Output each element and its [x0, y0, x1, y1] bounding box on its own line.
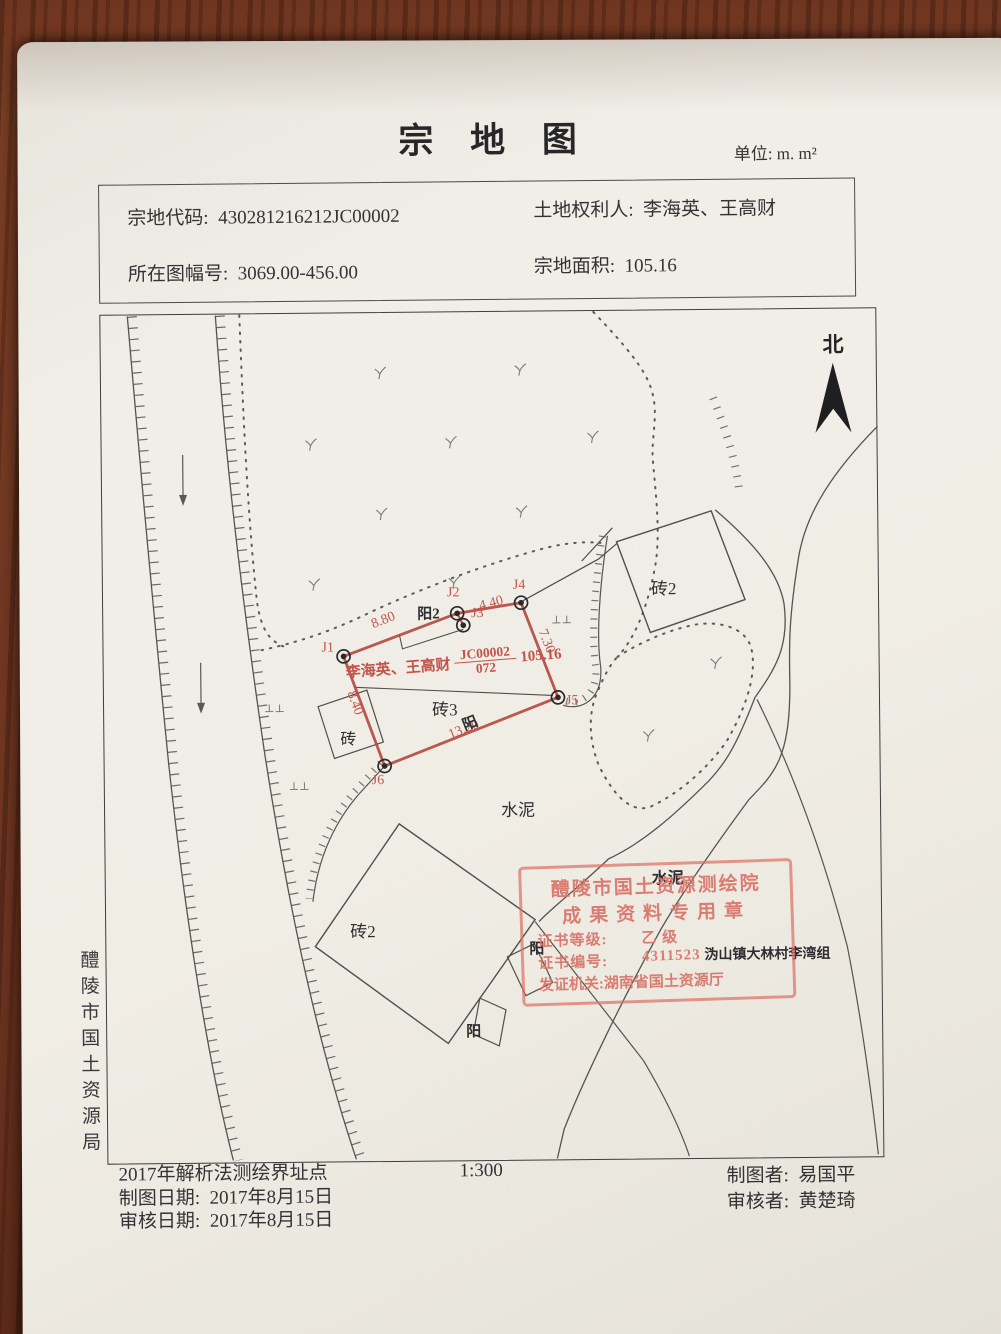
map-sheet-number: 所在图幅号: 3069.00-456.00	[128, 257, 358, 286]
official-stamp: 醴陵市国土资源测绘院 成果资料专用章 证书等级: 乙 级 证书编号: 43115…	[518, 858, 796, 1007]
label-field-symbol-3: ⊥⊥	[289, 780, 310, 793]
drafter: 制图者: 易国平	[726, 1163, 855, 1190]
unit-label: 单位: m. m²	[734, 139, 817, 165]
label-brick2-top: 砖2	[651, 574, 677, 599]
label-brick2-bottom: 砖2	[350, 917, 376, 942]
point-label-j2: J2	[447, 585, 460, 601]
draw-date: 制图日期: 2017年8月15日	[119, 1185, 334, 1211]
agency-vertical-title: 醴陵市国土资源局	[74, 950, 103, 1165]
rights-holder: 土地权利人: 李海英、王高财	[533, 193, 776, 222]
label-brick3: 砖3	[432, 695, 458, 720]
reviewer: 审核者: 黄楚琦	[727, 1189, 856, 1216]
page-title: 宗 地 图	[294, 110, 694, 165]
parcel-code: 宗地代码: 430281216212JC00002	[127, 201, 400, 231]
footer-notes: 2017年解析法测绘界址点 制图日期: 2017年8月15日 审核日期: 201…	[118, 1162, 333, 1235]
parcel-info-box: 宗地代码: 430281216212JC00002 土地权利人: 李海英、王高财…	[98, 177, 856, 303]
label-brick-small: 砖	[340, 725, 356, 749]
map-frame	[99, 307, 884, 1164]
owner-name: 李海英、王高财	[345, 653, 451, 682]
parcel-area: 宗地面积: 105.16	[534, 250, 677, 278]
point-label-j5: J5	[566, 693, 579, 709]
review-date: 审核日期: 2017年8月15日	[119, 1209, 334, 1235]
parcel-map-document: 宗 地 图 单位: m. m² 宗地代码: 430281216212JC0000…	[0, 0, 1001, 1334]
point-label-j6: J6	[372, 773, 385, 789]
point-label-j4: J4	[513, 578, 526, 594]
point-label-j1: J1	[321, 640, 334, 656]
footer-credits: 制图者: 易国平 审核者: 黄楚琦	[726, 1163, 855, 1216]
survey-method-note: 2017年解析法测绘界址点	[118, 1162, 333, 1188]
label-balcony2: 阳2	[417, 602, 440, 623]
north-label: 北	[822, 329, 843, 359]
photo-scene: 宗 地 图 单位: m. m² 宗地代码: 430281216212JC0000…	[0, 0, 1001, 1334]
label-cement-1: 水泥	[501, 796, 535, 821]
label-field-symbol-1: ⊥⊥	[551, 613, 572, 626]
label-balcony-bottom: 阳	[466, 1020, 481, 1041]
map-scale: 1:300	[459, 1160, 502, 1182]
parcel-fraction: JC00002 072	[453, 644, 517, 678]
owner-area: 105.16	[520, 646, 562, 666]
label-field-symbol-2: ⊥⊥	[264, 702, 285, 715]
